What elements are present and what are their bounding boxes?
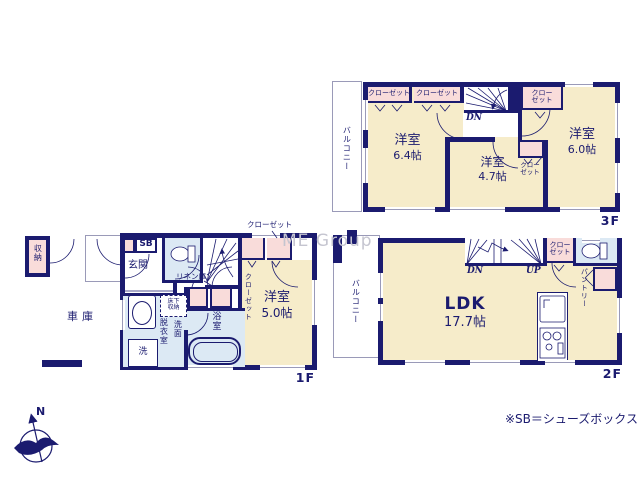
floor-3f-plan: バルコニー クローゼット クローゼット DN クロー ゼット クロ (330, 78, 622, 230)
compass-north-label: N (36, 406, 45, 418)
floor-2f-plan: バルコニー DN UP クロー ゼット パントリー LDK 17.7帖 (330, 228, 632, 382)
footnote: ※SB＝シューズボックス (505, 413, 638, 426)
floor-3f-linework (330, 78, 622, 230)
floor-2f-linework (330, 228, 632, 382)
compass: N (12, 404, 64, 474)
watermark: ME Group (282, 231, 373, 251)
floorplan-canvas: バルコニー クローゼット クローゼット DN クロー ゼット クロ (0, 0, 640, 480)
